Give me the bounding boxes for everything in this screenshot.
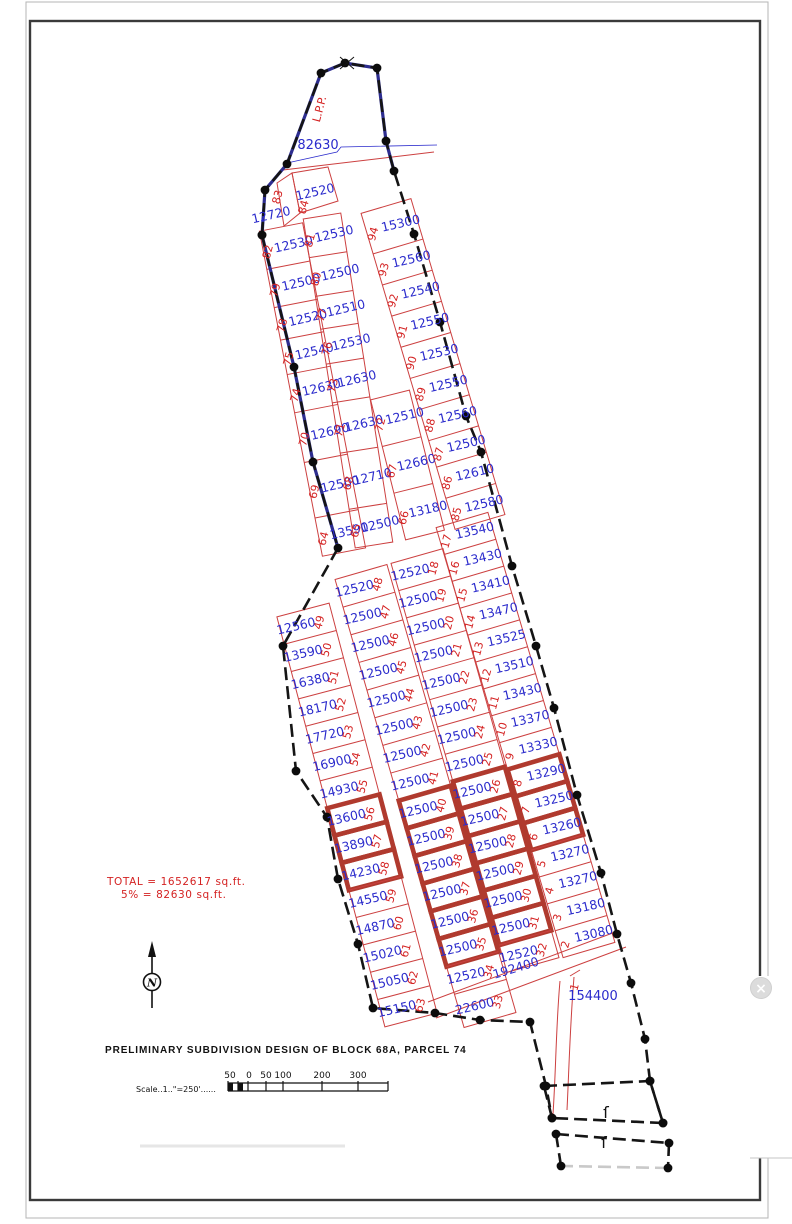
- lot-area-label: 15050: [369, 969, 411, 993]
- boundary-vertex-dot: [341, 59, 350, 68]
- lot-area-label: 12510: [384, 404, 426, 428]
- lot-division-line: [321, 323, 359, 329]
- lot-area-label: 12610: [454, 460, 496, 484]
- lot-number-label: 21: [449, 642, 465, 659]
- lot-number-label: 19: [433, 587, 449, 604]
- scale-bar-hatch: [228, 1083, 233, 1091]
- lot-number-label: 17: [438, 533, 454, 550]
- boundary-vertex-dot: [390, 167, 399, 176]
- lot-number-label: 13: [470, 640, 486, 657]
- lot-number-label: 52: [333, 696, 349, 713]
- lot-number-label: 31: [526, 914, 542, 931]
- scale-tick-label: 0: [246, 1071, 252, 1081]
- boundary-vertex-dot: [476, 1016, 485, 1025]
- scale-tick-label: 200: [313, 1071, 330, 1081]
- lot-number-label: 29: [511, 860, 527, 877]
- boundary-quad-edge: [544, 1081, 650, 1086]
- map-annotation: 83: [270, 189, 286, 206]
- lot-number-label: 93: [376, 261, 392, 278]
- lot-number-label: 36: [465, 908, 481, 925]
- map-annotation: ſ: [603, 1103, 609, 1122]
- boundary-vertex-dot: [627, 979, 636, 988]
- north-arrow-head: [148, 941, 156, 957]
- boundary-vertex-dot: [309, 458, 318, 467]
- lot-number-label: 45: [393, 659, 409, 676]
- lot-number-label: 42: [417, 742, 433, 759]
- lot-area-label: 13080: [573, 922, 615, 946]
- lot-number-label: 56: [362, 805, 378, 822]
- lot-division-line: [326, 358, 364, 364]
- lot-division-line: [394, 483, 433, 493]
- lot-number-label: 50: [319, 641, 335, 658]
- lot-number-label: 88: [422, 417, 438, 434]
- lot-number-label: 59: [383, 887, 399, 904]
- lot-number-label: 47: [378, 603, 394, 620]
- road-edge: [553, 981, 560, 1114]
- lot-number-label: 54: [347, 751, 363, 768]
- lot-number-label: 16: [446, 560, 462, 577]
- lot-number-label: 62: [405, 969, 421, 986]
- lot-area-label: 12550: [427, 372, 469, 396]
- lot-number-label: 20: [441, 614, 457, 631]
- lot-area-label: 12500: [359, 512, 401, 536]
- lot-area-label: 12560: [275, 614, 317, 638]
- lot-division-line: [267, 261, 310, 269]
- lot-number-label: 46: [386, 631, 402, 648]
- map-annotation: 12720: [250, 203, 292, 227]
- scale-bar: Scale..1.."=250'...... 50050100200300: [136, 1071, 388, 1094]
- lot-number-label: 49: [311, 614, 327, 631]
- boundary-vertex-dot: [431, 1009, 440, 1018]
- lot-area-label: 12630: [336, 367, 378, 391]
- plat-drawing: 1253082125007912520781254075126307412690…: [0, 0, 792, 1224]
- map-annotation: 82630: [297, 138, 338, 153]
- boundary-vertex-dot: [354, 940, 363, 949]
- north-arrow: N: [144, 941, 161, 1008]
- boundary-vertex-dot: [317, 69, 326, 78]
- lot-area-label: 13370: [509, 707, 551, 731]
- lot-number-label: 44: [401, 686, 417, 703]
- summary-notes: TOTAL = 1652617 sq.ft. 5% = 82630 sq.ft.: [106, 876, 246, 901]
- boundary-quad-edge: [561, 1166, 668, 1168]
- lot-area-label: 12500: [319, 260, 361, 284]
- lot-area-label: 13180: [407, 497, 449, 521]
- lot-division-line: [332, 397, 370, 403]
- total-area-note: TOTAL = 1652617 sq.ft.: [106, 876, 246, 888]
- lot-number-label: 94: [365, 225, 381, 242]
- lot-area-label: 12510: [325, 296, 367, 320]
- north-label: N: [146, 977, 158, 990]
- boundary-vertex-dot: [540, 1082, 549, 1091]
- lot-area-label: 13410: [470, 572, 512, 596]
- lot-number-label: 22: [456, 669, 472, 686]
- lot-area-label: 12530: [313, 222, 355, 246]
- viewer-overlay: ×: [750, 976, 792, 1158]
- lot-number-label: 24: [472, 723, 488, 740]
- lot-number-label: 43: [409, 714, 425, 731]
- lot-number-label: 10: [494, 721, 510, 738]
- lot-number-label: 57: [369, 833, 385, 850]
- scale-tick-label: 50: [260, 1071, 272, 1081]
- lot-number-label: 61: [398, 942, 414, 959]
- lot-area-label: 17720: [304, 723, 346, 747]
- lot-number-label: 92: [385, 292, 401, 309]
- boundary-vertex-dot: [382, 137, 391, 146]
- lot-number-label: 51: [326, 669, 342, 686]
- boundary-vertex-dot: [659, 1119, 668, 1128]
- lot-area-label: 12530: [418, 340, 460, 364]
- lot-number-label: 90: [404, 355, 420, 372]
- lot-division-line: [349, 503, 387, 509]
- lot-area-label: 16900: [311, 751, 353, 775]
- lot-area-label: 18170: [297, 696, 339, 720]
- plat-viewer: { "page": { "close_button": "×" }, "titl…: [0, 0, 792, 1224]
- boundary-vertex-dot: [373, 64, 382, 73]
- lot-number-label: 27: [495, 805, 511, 822]
- road-edge: [570, 970, 580, 976]
- lot-area-label: 15150: [376, 997, 418, 1021]
- lot-number-label: 39: [441, 825, 457, 842]
- lot-area-label: 12560: [437, 403, 479, 427]
- lot-number-label: 38: [449, 852, 465, 869]
- lot-number-label: 40: [433, 797, 449, 814]
- lot-area-label: 13330: [517, 733, 559, 757]
- lot-number-label: 41: [425, 769, 441, 786]
- boundary-quad-edge: [556, 1134, 561, 1166]
- road-edge: [283, 152, 434, 170]
- lot-area-label: 12530: [330, 330, 372, 354]
- lot-number-label: 18: [426, 560, 442, 577]
- boundary-vertex-dot: [508, 562, 517, 571]
- scale-label: Scale..1.."=250'......: [136, 1085, 216, 1094]
- lot-number-label: 23: [464, 696, 480, 713]
- boundary-vertex-dot: [550, 704, 559, 713]
- scale-tick-label: 100: [274, 1071, 291, 1081]
- boundary-vertex-dot: [597, 869, 606, 878]
- scale-tick-label: 50: [224, 1071, 236, 1081]
- lot-number-label: 48: [370, 576, 386, 593]
- lot-area-label: 12560: [390, 247, 432, 271]
- lot-number-label: 87: [431, 446, 447, 463]
- boundary-vertex-dot: [292, 767, 301, 776]
- drawing-frame: [30, 21, 760, 1200]
- boundary-vertex-dot: [532, 642, 541, 651]
- lot-number-label: 60: [391, 915, 407, 932]
- boundary-vertex-dot: [410, 230, 419, 239]
- boundary-vertex-dot: [664, 1164, 673, 1173]
- overlay-panel: [750, 976, 792, 1158]
- lot-number-label: 15: [454, 587, 470, 604]
- lot-area-label: 12550: [409, 309, 451, 333]
- lot-number-label: 12: [478, 667, 494, 684]
- map-annotation: ſ: [601, 1133, 607, 1152]
- lot-number-label: 26: [487, 778, 503, 795]
- lot-area-label: 13180: [565, 895, 607, 919]
- map-annotation: 84: [296, 199, 312, 216]
- drawing-title: PRELIMINARY SUBDIVISION DESIGN OF BLOCK …: [105, 1045, 467, 1056]
- scale-bar-graphic: 50050100200300: [224, 1071, 388, 1091]
- boundary-vertex-dot: [526, 1018, 535, 1027]
- boundary-vertex-dot: [261, 186, 270, 195]
- lot-area-label: 13270: [557, 868, 599, 892]
- boundary-vertex-dot: [334, 544, 343, 553]
- lot-number-label: 11: [486, 694, 502, 711]
- lot-area-label: 13470: [477, 599, 519, 623]
- lot-area-label: 16380: [289, 669, 331, 693]
- lot-area-label: 12660: [395, 450, 437, 474]
- lot-number-label: 33: [490, 993, 506, 1010]
- boundary-vertex-dot: [557, 1162, 566, 1171]
- label-layer: 1253082125007912520781254075126307412690…: [250, 95, 618, 1152]
- open-space-note: 5% = 82630 sq.ft.: [121, 889, 227, 901]
- lot-number-label: 25: [480, 751, 496, 768]
- lot-area-label: 15020: [361, 942, 403, 966]
- lot-number-label: 86: [439, 475, 455, 492]
- boundary-vertex-dot: [646, 1077, 655, 1086]
- boundary-vertex-dot: [548, 1114, 557, 1123]
- close-button[interactable]: ×: [751, 978, 772, 999]
- lot-number-label: 28: [503, 832, 519, 849]
- lot-area-label: 12580: [463, 491, 505, 515]
- lot-number-label: 14: [462, 613, 478, 630]
- lot-number-label: 58: [376, 860, 392, 877]
- lot-area-label: 14930: [318, 778, 360, 802]
- scale-tick-label: 300: [349, 1071, 366, 1081]
- lot-number-label: 55: [355, 778, 371, 795]
- scale-bar-hatch: [238, 1083, 243, 1091]
- lot-area-label: 13590: [282, 641, 324, 665]
- lot-area-label: 13510: [493, 653, 535, 677]
- lot-area-label: 13430: [501, 680, 543, 704]
- lot-area-label: 12540: [400, 278, 442, 302]
- boundary-vertex-dot: [641, 1035, 650, 1044]
- boundary-vertex-dot: [283, 160, 292, 169]
- lot-number-label: 53: [340, 723, 356, 740]
- lot-division-line: [309, 252, 347, 258]
- boundary-quad-edge: [556, 1134, 669, 1143]
- lot-number-label: 30: [518, 887, 534, 904]
- lot-area-label: 13525: [485, 626, 527, 649]
- boundary-vertex-dot: [552, 1130, 561, 1139]
- lot-number-label: 91: [394, 324, 410, 341]
- close-icon[interactable]: ×: [755, 981, 767, 997]
- lot-division-line: [382, 437, 421, 447]
- boundary-vertex-dot: [258, 231, 267, 240]
- lot-area-label: 13430: [462, 545, 504, 569]
- boundary-vertex-dot: [477, 448, 486, 457]
- lot-area-label: 14870: [354, 915, 396, 939]
- lot-division-line: [315, 290, 353, 296]
- lot-number-label: 35: [473, 935, 489, 952]
- lot-division-line: [315, 510, 358, 518]
- lot-number-label: 37: [457, 880, 473, 897]
- lot-number-label: 89: [413, 386, 429, 403]
- boundary-vertex-dot: [665, 1139, 674, 1148]
